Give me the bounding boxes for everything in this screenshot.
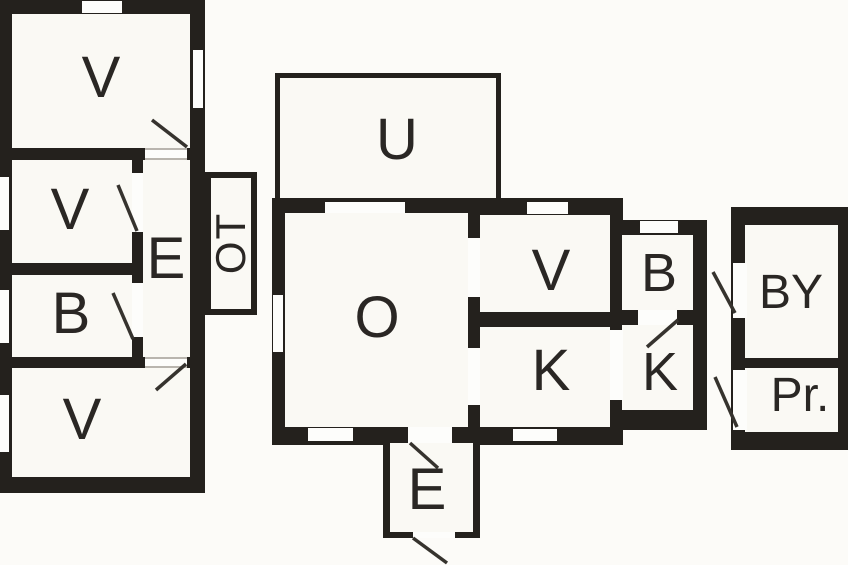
- building-outbuilding: BY Pr.: [0, 0, 848, 565]
- room-label-by: BY: [759, 269, 823, 317]
- room-label-pr: Pr.: [771, 372, 830, 420]
- door-opening-pr: [733, 370, 747, 430]
- door-opening-by: [733, 263, 747, 318]
- floor-plan-canvas: V V E B V OT U O V K: [0, 0, 848, 565]
